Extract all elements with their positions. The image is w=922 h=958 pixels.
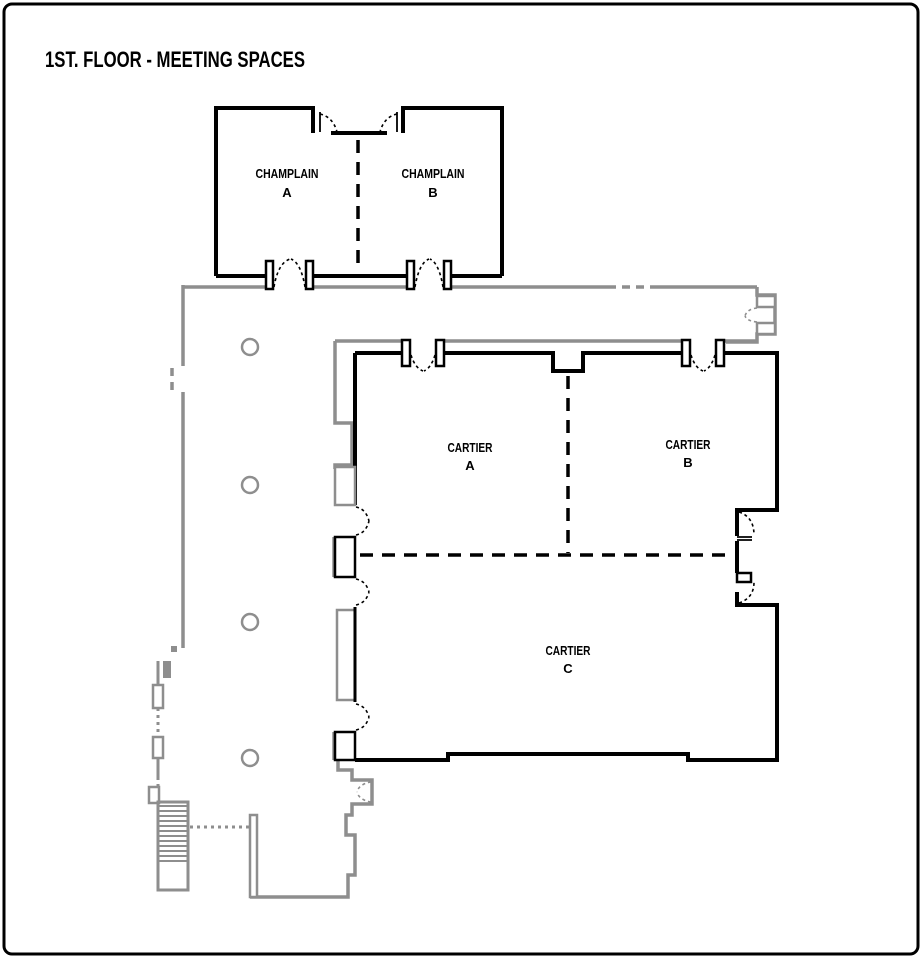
cartier-top-door-swings (411, 355, 715, 371)
door-pier (266, 261, 273, 289)
lobby-corridor (149, 285, 775, 897)
room-label-champlain-b: CHAMPLAIN (402, 166, 465, 181)
door-pier (306, 261, 313, 289)
room-letter-cartier-c: C (563, 661, 573, 676)
room-label-champlain-a: CHAMPLAIN (256, 166, 319, 181)
floor-plan-page: 1ST. FLOOR - MEETING SPACES (0, 0, 922, 958)
cartier-partition-dividers (360, 376, 734, 555)
page-border (4, 4, 918, 954)
corridor-right-door-jamb (757, 323, 775, 334)
wall-pier (337, 610, 355, 700)
wall-pier (335, 467, 355, 505)
champlain-top-door-swings (320, 114, 397, 132)
wall-fragment (163, 661, 171, 678)
door-pier (402, 340, 410, 366)
room-letter-cartier-b: B (683, 455, 692, 470)
lobby-southeast-wall (250, 760, 372, 897)
page-title: 1ST. FLOOR - MEETING SPACES (45, 47, 305, 72)
stair-side-wall (250, 815, 257, 897)
window-mullion (153, 737, 163, 758)
staircase (158, 802, 257, 897)
cartier-block (335, 340, 777, 760)
room-letter-champlain-a: A (282, 185, 292, 200)
room-label-cartier-b: CARTIER (666, 437, 711, 452)
column (242, 339, 258, 355)
column (242, 477, 258, 493)
door-pier (444, 261, 451, 289)
door-pier (682, 340, 690, 366)
wall-fragment (171, 646, 177, 652)
room-label-cartier-a: CARTIER (448, 440, 493, 455)
column (242, 614, 258, 630)
cartier-right-door-swings (739, 512, 754, 603)
room-labels: CHAMPLAIN A CHAMPLAIN B CARTIER A CARTIE… (256, 166, 711, 676)
wall-pier (335, 537, 355, 577)
wall-pier (335, 732, 355, 760)
room-label-cartier-c: CARTIER (546, 643, 591, 658)
cartier-right-door-jamb (737, 537, 752, 540)
door-pier (716, 340, 724, 366)
corridor-right-door-jamb (757, 296, 775, 307)
window-mullion (153, 685, 163, 708)
column (242, 750, 258, 766)
room-letter-cartier-a: A (465, 458, 475, 473)
door-pier (436, 340, 444, 366)
floor-plan-canvas: 1ST. FLOOR - MEETING SPACES (0, 0, 922, 958)
door-pier (407, 261, 414, 289)
cartier-left-door-swings (356, 507, 369, 730)
champlain-block (216, 108, 502, 289)
door-pier (737, 573, 751, 582)
southeast-door-swing (357, 782, 371, 802)
stair-treads (158, 806, 188, 861)
champlain-bottom-door-swings (274, 259, 443, 287)
room-letter-champlain-b: B (428, 185, 437, 200)
corridor-right-door-swing (745, 308, 757, 322)
